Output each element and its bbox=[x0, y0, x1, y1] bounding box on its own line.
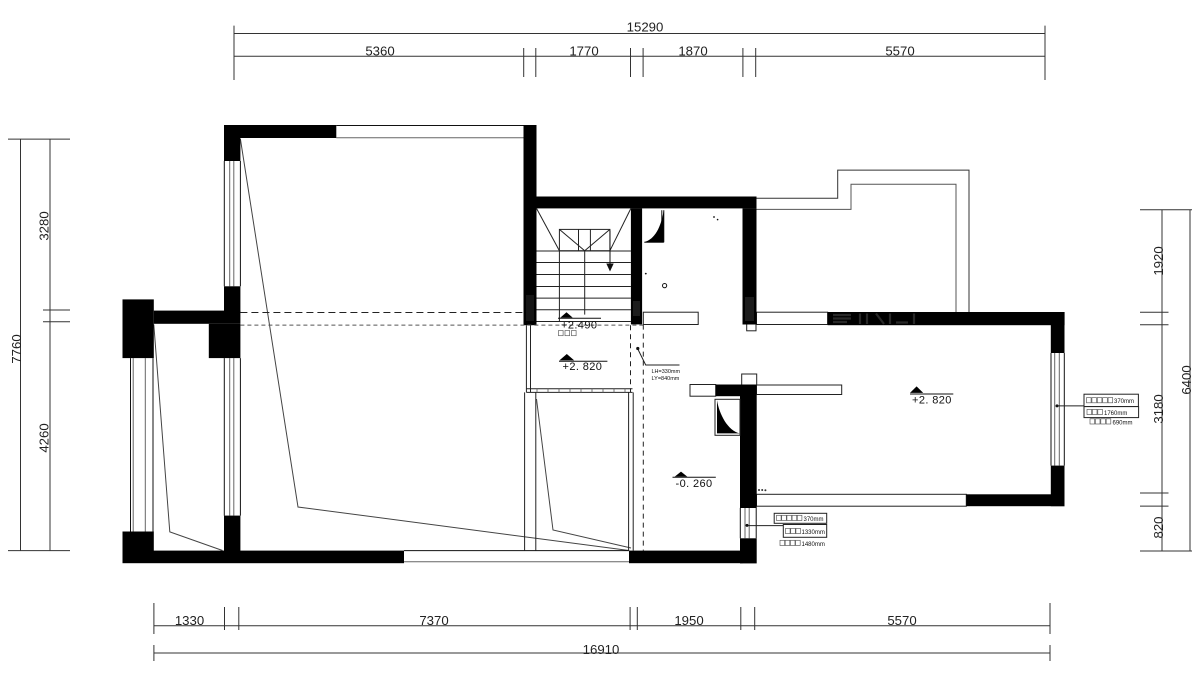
svg-text:1330: 1330 bbox=[175, 613, 204, 628]
svg-text:1920: 1920 bbox=[1151, 246, 1166, 275]
svg-text:6400: 6400 bbox=[1179, 365, 1194, 394]
svg-text:LY=840mm: LY=840mm bbox=[652, 376, 680, 382]
svg-text:1760mm: 1760mm bbox=[1104, 411, 1127, 417]
svg-text:1870: 1870 bbox=[678, 44, 707, 59]
svg-text:16910: 16910 bbox=[583, 642, 620, 657]
svg-text:1950: 1950 bbox=[674, 613, 703, 628]
svg-text:15290: 15290 bbox=[627, 19, 664, 34]
svg-text:1330mm: 1330mm bbox=[802, 530, 825, 536]
svg-text:1480mm: 1480mm bbox=[802, 542, 825, 548]
svg-text:7760: 7760 bbox=[9, 334, 24, 363]
svg-text:3180: 3180 bbox=[1151, 394, 1166, 423]
svg-text:370mm: 370mm bbox=[1114, 399, 1134, 405]
svg-text:3280: 3280 bbox=[37, 211, 52, 240]
svg-text:820: 820 bbox=[1151, 516, 1166, 538]
svg-text:690mm: 690mm bbox=[1113, 421, 1133, 427]
svg-text:+2. 820: +2. 820 bbox=[563, 361, 603, 373]
svg-text:4260: 4260 bbox=[37, 423, 52, 452]
svg-text:7370: 7370 bbox=[419, 613, 448, 628]
svg-text:5360: 5360 bbox=[365, 44, 394, 59]
svg-text:370mm: 370mm bbox=[804, 517, 824, 523]
svg-text:-0. 260: -0. 260 bbox=[676, 478, 713, 490]
svg-text:LH=330mm: LH=330mm bbox=[652, 369, 681, 375]
svg-text:+2. 820: +2. 820 bbox=[912, 394, 952, 406]
svg-text:1770: 1770 bbox=[569, 44, 598, 59]
svg-text:+2.490: +2.490 bbox=[561, 320, 597, 332]
svg-text:5570: 5570 bbox=[887, 613, 916, 628]
svg-text:5570: 5570 bbox=[885, 44, 914, 59]
